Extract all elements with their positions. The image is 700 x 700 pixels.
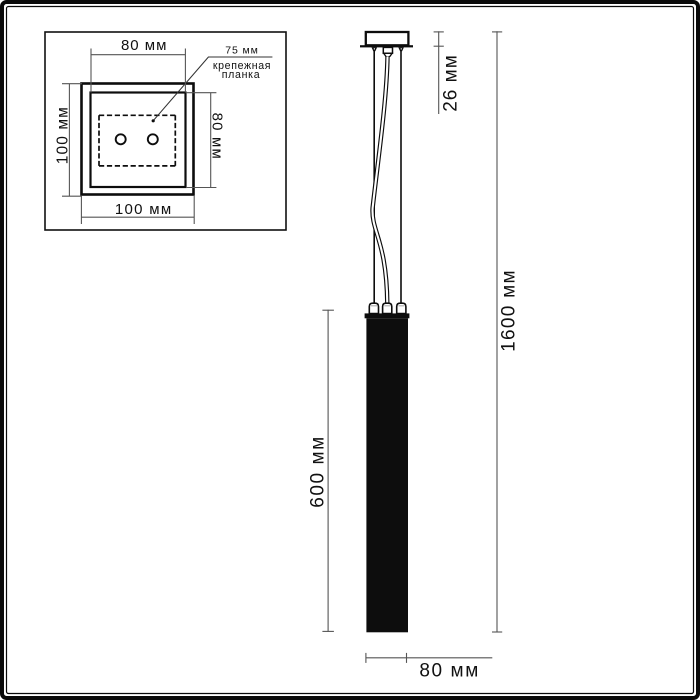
- svg-text:100 мм: 100 мм: [115, 201, 173, 218]
- svg-text:26 мм: 26 мм: [441, 54, 462, 112]
- svg-text:80 мм: 80 мм: [121, 37, 167, 54]
- svg-text:80 мм: 80 мм: [209, 113, 226, 160]
- svg-text:75 мм: 75 мм: [225, 45, 259, 57]
- svg-text:1600 мм: 1600 мм: [499, 269, 520, 352]
- svg-text:80 мм: 80 мм: [419, 660, 480, 681]
- svg-text:планка: планка: [222, 69, 261, 81]
- svg-text:100 мм: 100 мм: [54, 106, 71, 164]
- svg-text:600 мм: 600 мм: [307, 435, 328, 507]
